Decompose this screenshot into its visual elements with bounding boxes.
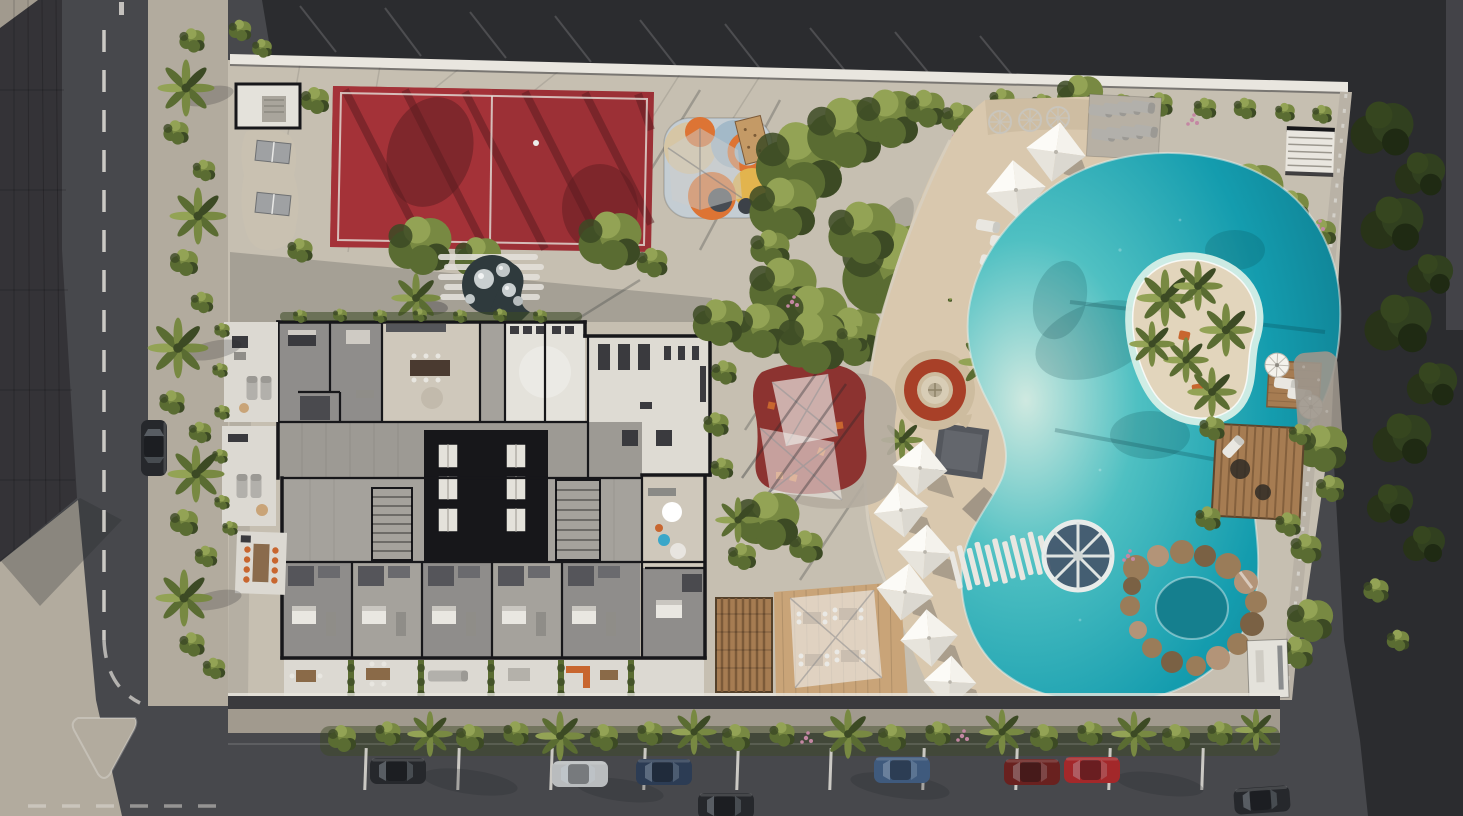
car bbox=[874, 757, 930, 783]
dining-shade-sail bbox=[790, 590, 882, 688]
car-left-road bbox=[141, 420, 167, 476]
car bbox=[1064, 757, 1120, 783]
ball bbox=[533, 140, 539, 146]
site-plan-render bbox=[0, 0, 1463, 816]
elevator-core bbox=[424, 430, 548, 562]
sw-dining-patio bbox=[235, 531, 287, 595]
car bbox=[552, 761, 608, 787]
timber-pergola bbox=[716, 598, 772, 692]
car bbox=[1233, 785, 1291, 815]
pingpong-table bbox=[255, 192, 291, 215]
pingpong-nook bbox=[241, 128, 298, 250]
entry-pavilion bbox=[236, 84, 300, 128]
shower-pad bbox=[1247, 639, 1289, 698]
palm-island bbox=[1129, 260, 1256, 418]
stair-west bbox=[372, 488, 412, 560]
car bbox=[636, 759, 692, 785]
south-boundary-wall bbox=[228, 696, 1280, 709]
top-lounger-pad bbox=[1086, 94, 1162, 160]
car bbox=[370, 758, 426, 784]
car bbox=[1004, 759, 1060, 785]
ne-stairs bbox=[1285, 126, 1335, 177]
pingpong-table bbox=[255, 140, 291, 163]
south-terraces bbox=[284, 660, 704, 698]
car bbox=[698, 793, 754, 816]
residential-floor-plan bbox=[278, 322, 710, 658]
south-wall-cap bbox=[228, 693, 1280, 696]
water-wheel-feature bbox=[1044, 522, 1112, 590]
stair-east bbox=[556, 480, 600, 560]
